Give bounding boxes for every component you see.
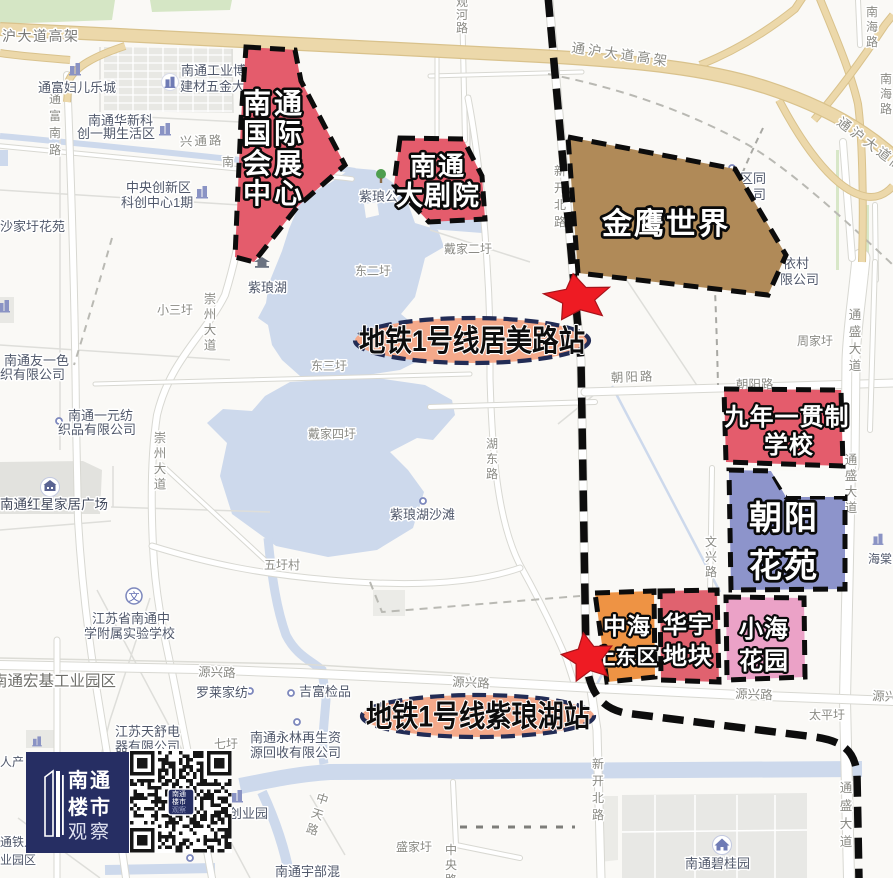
svg-text:罗莱家纺: 罗莱家纺 [196, 685, 248, 700]
svg-text:通: 通 [840, 781, 853, 795]
svg-text:江苏天舒电: 江苏天舒电 [115, 724, 180, 739]
svg-text:花苑: 花苑 [749, 547, 819, 584]
svg-text:通: 通 [849, 308, 862, 322]
svg-text:大: 大 [840, 817, 853, 831]
svg-text:中: 中 [445, 842, 457, 857]
svg-text:路: 路 [705, 564, 717, 579]
svg-text:文: 文 [705, 534, 717, 549]
svg-text:吉富检品: 吉富检品 [299, 684, 351, 699]
svg-text:央: 央 [445, 858, 457, 872]
svg-text:中海: 中海 [603, 613, 651, 639]
svg-text:大: 大 [849, 342, 862, 356]
svg-text:州: 州 [204, 308, 217, 322]
svg-text:织品有限公司: 织品有限公司 [58, 422, 136, 437]
svg-text:紫琅湖沙滩: 紫琅湖沙滩 [390, 507, 455, 522]
svg-text:南通一元纺: 南通一元纺 [68, 408, 133, 423]
svg-text:紫琅公: 紫琅公 [359, 189, 398, 204]
svg-text:海: 海 [866, 19, 878, 34]
svg-text:南通永林再生资: 南通永林再生资 [250, 730, 341, 745]
svg-text:东三圩: 东三圩 [311, 359, 347, 373]
svg-text:新: 新 [592, 756, 604, 771]
svg-text:南通工业博: 南通工业博 [181, 63, 246, 78]
svg-text:东: 东 [486, 452, 498, 466]
svg-text:盛家圩: 盛家圩 [396, 839, 432, 854]
svg-text:南通宇部混: 南通宇部混 [275, 864, 340, 878]
svg-text:路: 路 [486, 466, 498, 481]
svg-text:南通: 南通 [172, 789, 186, 798]
svg-text:沪大道高架: 沪大道高架 [2, 28, 80, 44]
svg-text:金鹰世界: 金鹰世界 [601, 207, 730, 241]
svg-text:会展: 会展 [243, 148, 305, 179]
svg-text:崇: 崇 [204, 292, 217, 306]
svg-text:学校: 学校 [764, 431, 814, 459]
svg-text:太平圩: 太平圩 [809, 707, 845, 722]
svg-text:南通宏基工业园区: 南通宏基工业园区 [0, 672, 116, 690]
svg-text:地铁1号线紫琅湖站: 地铁1号线紫琅湖站 [366, 700, 590, 734]
svg-text:路: 路 [445, 872, 457, 878]
svg-text:路: 路 [880, 101, 892, 116]
svg-text:创业园: 创业园 [229, 806, 268, 821]
svg-text:学附属实验学校: 学附属实验学校 [84, 626, 175, 641]
svg-text:源兴路: 源兴路 [198, 664, 237, 680]
svg-text:开: 开 [592, 774, 604, 788]
svg-text:楼市: 楼市 [68, 795, 112, 819]
svg-text:道: 道 [840, 835, 853, 849]
svg-text:南: 南 [880, 71, 892, 86]
svg-text:观察: 观察 [68, 821, 112, 843]
svg-text:路: 路 [49, 142, 61, 157]
svg-text:通富妇儿乐城: 通富妇儿乐城 [38, 80, 116, 95]
svg-text:源兴路: 源兴路 [735, 686, 774, 702]
svg-text:戴家二圩: 戴家二圩 [444, 241, 492, 256]
svg-text:周家圩: 周家圩 [797, 333, 833, 348]
svg-text:国际: 国际 [243, 118, 305, 149]
svg-text:路: 路 [866, 34, 878, 49]
svg-text:道: 道 [204, 339, 217, 353]
svg-text:湖: 湖 [486, 436, 498, 451]
svg-text:富: 富 [49, 108, 61, 123]
svg-text:通: 通 [845, 453, 858, 467]
svg-text:沙家圩花苑: 沙家圩花苑 [0, 219, 65, 234]
svg-text:兴通路: 兴通路 [180, 132, 224, 149]
svg-text:盛: 盛 [840, 798, 853, 813]
svg-text:盛: 盛 [845, 468, 858, 483]
svg-text:紫琅湖: 紫琅湖 [248, 280, 287, 295]
svg-text:人产: 人产 [0, 755, 24, 769]
svg-text:文: 文 [129, 590, 140, 604]
svg-text:五圩村: 五圩村 [264, 558, 300, 572]
svg-text:限公司: 限公司 [780, 272, 819, 287]
svg-text:河: 河 [456, 8, 468, 22]
svg-text:九年一贯制: 九年一贯制 [724, 403, 850, 431]
svg-text:中心: 中心 [243, 178, 305, 209]
svg-text:大: 大 [154, 462, 167, 476]
svg-text:源回收有限公司: 源回收有限公司 [250, 745, 341, 760]
svg-text:南通红星家居广场: 南通红星家居广场 [0, 496, 108, 512]
svg-text:地铁1号线居美路站: 地铁1号线居美路站 [359, 324, 585, 358]
svg-text:南通碧桂园: 南通碧桂园 [685, 856, 750, 871]
svg-text:源兴路: 源兴路 [452, 674, 491, 691]
svg-text:路: 路 [592, 807, 604, 822]
svg-text:中央创新区: 中央创新区 [126, 180, 191, 195]
svg-text:道: 道 [154, 478, 167, 492]
svg-text:路: 路 [456, 20, 468, 35]
svg-text:州: 州 [154, 447, 167, 461]
svg-text:南通: 南通 [68, 769, 112, 792]
svg-text:南: 南 [222, 154, 234, 169]
svg-text:崇: 崇 [154, 431, 167, 445]
svg-text:朝阳: 朝阳 [749, 499, 819, 536]
svg-text:南: 南 [866, 4, 878, 19]
svg-text:海棠: 海棠 [868, 551, 892, 566]
svg-text:七圩: 七圩 [214, 737, 238, 751]
svg-text:科创中心1期: 科创中心1期 [121, 195, 193, 210]
svg-text:南通: 南通 [243, 88, 305, 119]
svg-text:织有限公司: 织有限公司 [0, 367, 65, 382]
svg-text:业园区: 业园区 [0, 853, 36, 867]
svg-text:兴: 兴 [705, 550, 717, 564]
svg-text:观察: 观察 [172, 805, 186, 814]
svg-text:东二圩: 东二圩 [355, 264, 391, 278]
svg-text:源兴: 源兴 [872, 689, 893, 704]
svg-text:楼市: 楼市 [172, 797, 186, 806]
svg-text:朝阳路: 朝阳路 [611, 368, 655, 385]
svg-text:大剧院: 大剧院 [396, 180, 480, 211]
svg-text:南通: 南通 [410, 151, 466, 181]
svg-text:南通友一色: 南通友一色 [4, 353, 69, 368]
svg-text:江苏省南通中: 江苏省南通中 [92, 611, 170, 626]
svg-text:地块: 地块 [663, 643, 713, 670]
svg-text:道: 道 [849, 359, 862, 373]
svg-text:南: 南 [49, 125, 61, 140]
svg-text:海: 海 [880, 86, 892, 101]
svg-text:建材五金大: 建材五金大 [180, 79, 245, 94]
svg-text:戴家四圩: 戴家四圩 [308, 426, 356, 441]
svg-text:华宇: 华宇 [663, 611, 713, 639]
svg-text:盛: 盛 [849, 324, 862, 339]
svg-text:小三圩: 小三圩 [157, 303, 193, 317]
svg-text:北: 北 [592, 791, 604, 805]
svg-text:创一期生活区: 创一期生活区 [77, 126, 155, 141]
svg-text:区同: 区同 [740, 171, 766, 186]
svg-text:小海: 小海 [739, 615, 789, 643]
svg-text:花园: 花园 [739, 648, 789, 675]
svg-text:大: 大 [204, 323, 217, 337]
